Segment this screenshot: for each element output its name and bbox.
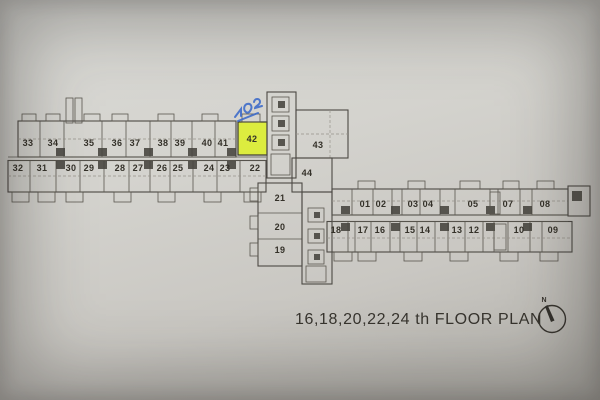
- unit-number: 13: [452, 225, 463, 235]
- stair-core-upper: [271, 154, 290, 175]
- unit-number: 03: [408, 199, 419, 209]
- unit-number: 01: [360, 199, 371, 209]
- unit-number: 40: [202, 138, 213, 148]
- stair-core-left: [66, 98, 82, 123]
- unit-number: 05: [468, 199, 479, 209]
- unit-number: 10: [514, 225, 525, 235]
- north-arrow: N: [539, 297, 566, 333]
- unit-number: 09: [548, 225, 559, 235]
- plan-title: 16,18,20,22,24 th FLOOR PLAN: [295, 311, 542, 328]
- unit-number: 07: [503, 199, 514, 209]
- unit-number: 33: [23, 138, 34, 148]
- unit-number: 08: [540, 199, 551, 209]
- unit-number: 37: [130, 138, 141, 148]
- unit-numbers-left-bottom: 32 31 30 29 28 27 26 25 24 23 22: [13, 163, 261, 173]
- unit-number: 14: [420, 225, 431, 235]
- unit-number-highlighted: 42: [247, 134, 258, 144]
- unit-number: 20: [275, 222, 286, 232]
- left-wing: 33 34 35 36 37 38 39 40 41 32 31 30 29 2…: [8, 98, 266, 202]
- stair-core-right-bottom: [494, 224, 506, 250]
- service-shafts-right: [341, 206, 532, 231]
- unit-number: 32: [13, 163, 24, 173]
- center-tower: 42 43 44: [235, 92, 348, 284]
- unit-number: 22: [250, 163, 261, 173]
- interior-walls-43: [296, 110, 348, 158]
- floor-plan-drawing: 33 34 35 36 37 38 39 40 41 32 31 30 29 2…: [0, 0, 600, 400]
- unit-number: 24: [204, 163, 215, 173]
- balconies-left: [12, 114, 261, 202]
- unit-number: 44: [302, 168, 313, 178]
- unit-number: 27: [133, 163, 144, 173]
- unit-number: 31: [37, 163, 48, 173]
- unit-number: 17: [358, 225, 369, 235]
- center-unit-column: 21 20 19: [250, 183, 302, 266]
- unit-number: 28: [115, 163, 126, 173]
- unit-number: 43: [313, 140, 324, 150]
- north-label: N: [541, 297, 546, 304]
- unit-number: 02: [376, 199, 387, 209]
- unit-number: 29: [84, 163, 95, 173]
- unit-number: 34: [48, 138, 59, 148]
- handwritten-blue-mark: [235, 99, 262, 121]
- unit-number: 18: [331, 225, 342, 235]
- right-end-annex: [568, 186, 590, 216]
- unit-number: 35: [84, 138, 95, 148]
- unit-number: 04: [423, 199, 434, 209]
- unit-number: 12: [469, 225, 480, 235]
- unit-number: 21: [275, 193, 286, 203]
- right-wing-corridor: [332, 215, 568, 222]
- unit-numbers-left-top: 33 34 35 36 37 38 39 40 41: [23, 138, 229, 148]
- right-wing: 01 02 03 04 05 07 08 18 17 16 15 14 13 1…: [327, 181, 590, 261]
- floor-plan-photo: 33 34 35 36 37 38 39 40 41 32 31 30 29 2…: [0, 0, 600, 400]
- unit-number: 39: [175, 138, 186, 148]
- unit-number: 41: [218, 138, 229, 148]
- unit-number: 36: [112, 138, 123, 148]
- unit-number: 25: [173, 163, 184, 173]
- unit-number: 19: [275, 245, 286, 255]
- unit-number: 30: [66, 163, 77, 173]
- unit-number: 38: [158, 138, 169, 148]
- unit-number: 26: [157, 163, 168, 173]
- unit-number: 23: [220, 163, 231, 173]
- unit-number: 15: [405, 225, 416, 235]
- north-arrow-needle: [545, 305, 555, 322]
- unit-number: 16: [375, 225, 386, 235]
- stair-core-lower: [306, 266, 326, 282]
